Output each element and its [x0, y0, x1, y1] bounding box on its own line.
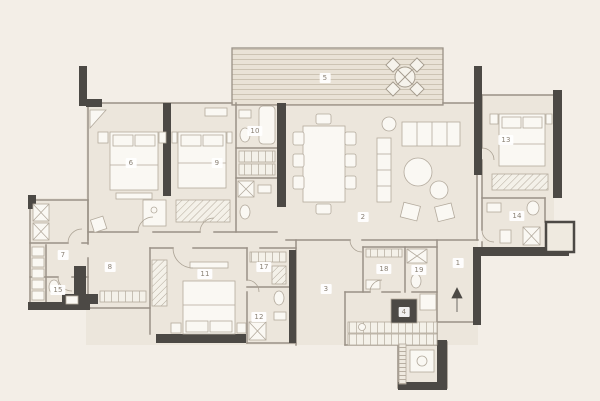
sink-icon	[487, 203, 501, 212]
nightstand-icon	[237, 323, 246, 333]
toilet-icon	[527, 201, 539, 215]
toilet-icon	[500, 230, 511, 243]
service-shaft	[546, 222, 574, 252]
shoe-shelf-icon	[32, 247, 44, 256]
wardrobe-icon	[152, 260, 167, 306]
dining-table-icon	[303, 126, 345, 202]
nightstand-icon	[171, 323, 181, 333]
nightstand-icon	[546, 114, 552, 124]
plant-icon	[382, 117, 396, 131]
nightstand-icon	[98, 132, 108, 143]
cooktop-icon	[391, 299, 417, 323]
balcony-screen-icon	[399, 344, 406, 384]
sink-icon	[274, 312, 286, 320]
hall-closet-icon	[100, 291, 146, 302]
toilet-icon	[240, 128, 250, 142]
wardrobe-icon	[492, 174, 548, 190]
toilet-icon	[411, 274, 421, 288]
shelf-icon	[205, 108, 227, 116]
bedroom3-furniture	[490, 114, 552, 190]
bathtub-icon	[259, 106, 275, 144]
sink-icon	[66, 296, 78, 304]
floor-plan-drawing	[0, 0, 600, 401]
coffee-table-icon	[430, 181, 448, 199]
terrace-area	[232, 48, 443, 105]
nightstand-icon	[227, 132, 232, 143]
sink-icon	[258, 185, 271, 193]
kitchen-sink-icon	[359, 324, 366, 331]
closet-icon	[239, 151, 275, 162]
wardrobe-icon	[176, 200, 230, 222]
toilet-icon	[240, 205, 250, 219]
toilet-icon	[274, 291, 284, 305]
closet-icon	[250, 252, 286, 262]
nightstand-icon	[159, 132, 166, 143]
nightstand-icon	[172, 132, 177, 143]
floor-plan-canvas: 123456789101112131415171819	[0, 0, 600, 401]
bench-icon	[116, 193, 152, 199]
toilet-icon	[49, 280, 59, 294]
sink-icon	[239, 110, 251, 118]
sofa-icon	[402, 122, 460, 146]
nightstand-icon	[490, 114, 498, 124]
bench-icon	[190, 262, 228, 268]
coffee-table-icon	[404, 158, 432, 186]
fridge-icon	[420, 294, 436, 310]
shelf-icon	[366, 249, 402, 257]
